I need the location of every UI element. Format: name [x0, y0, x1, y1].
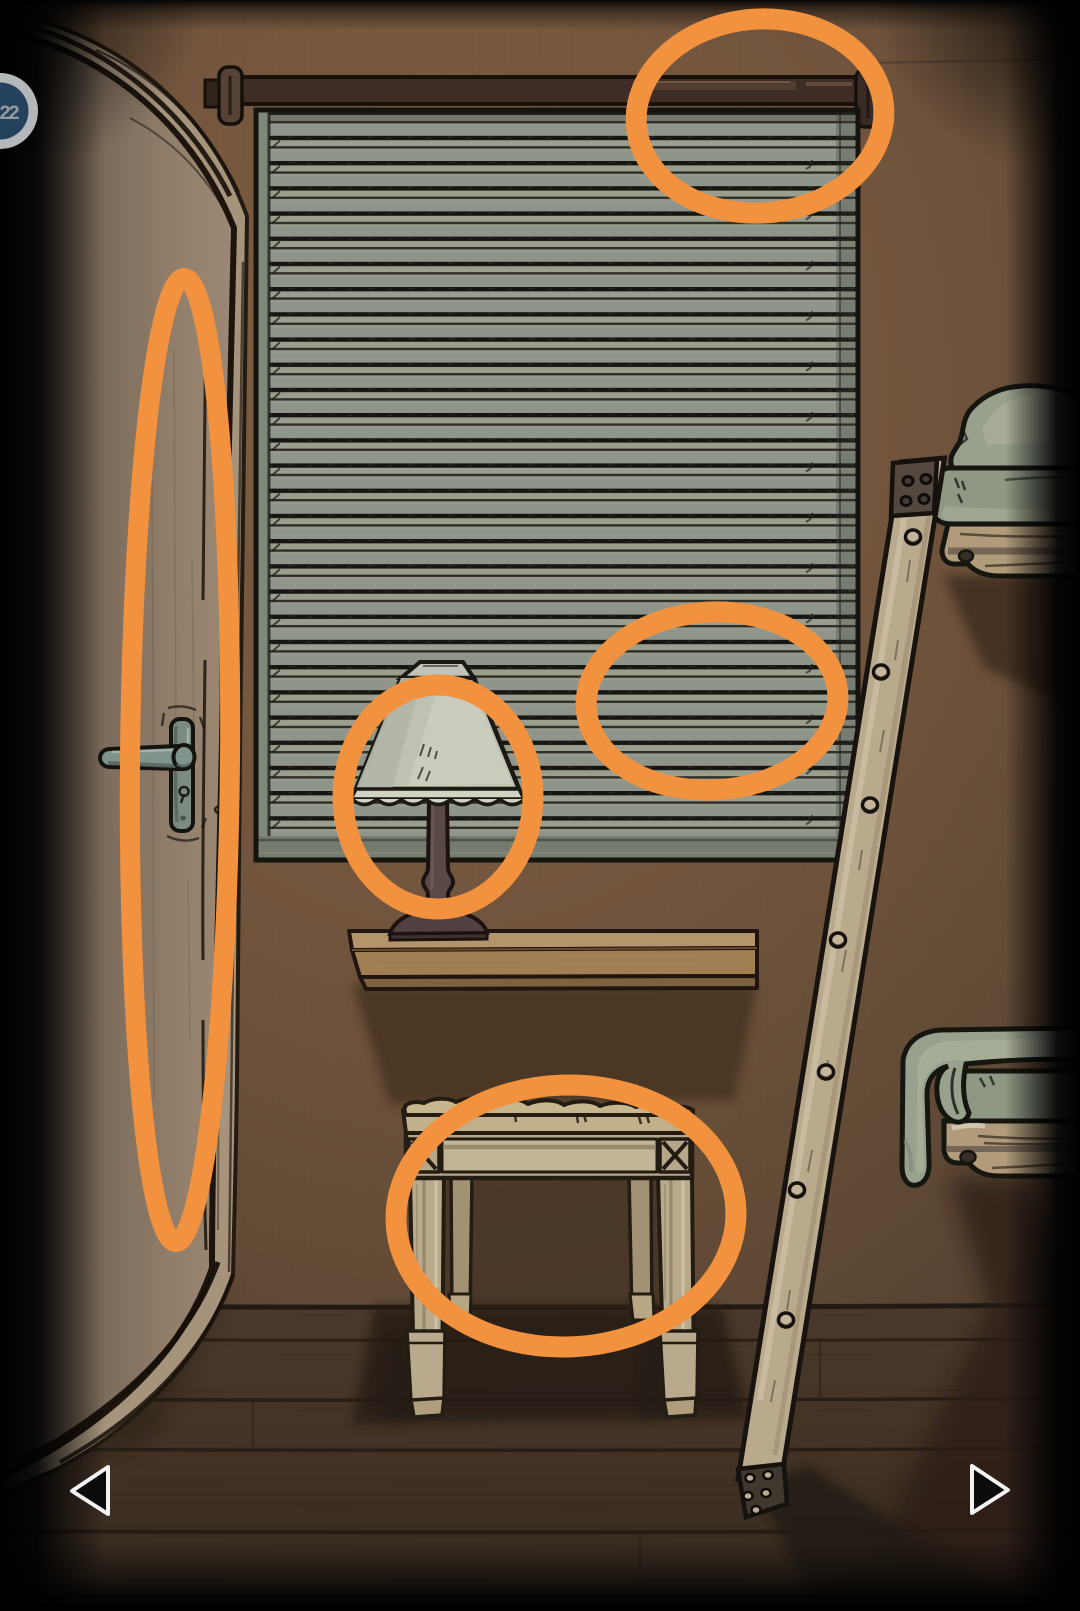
svg-text:22: 22: [0, 103, 19, 126]
